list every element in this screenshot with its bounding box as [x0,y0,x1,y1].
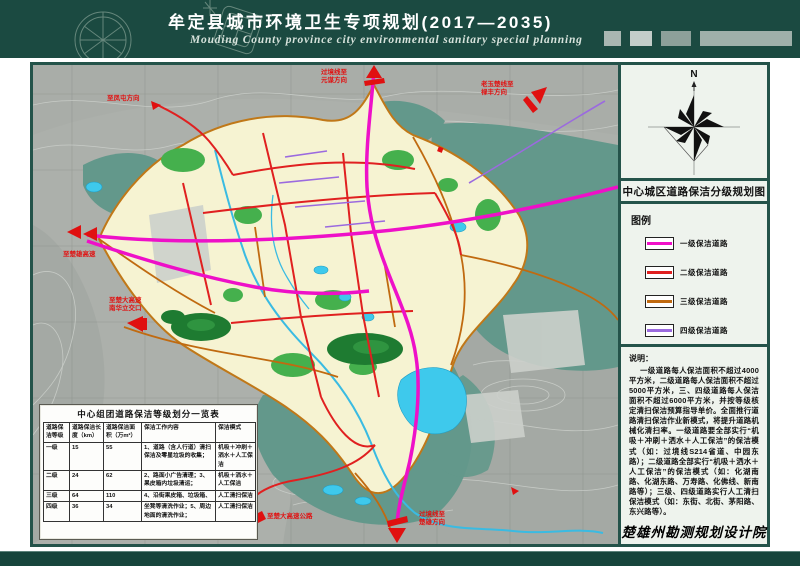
legend-item-grade3: 三级保洁道路 [645,295,757,308]
legend-label: 一级保洁道路 [680,238,728,249]
cell: 四级 [44,502,70,522]
cell: 人工清扫保洁 [216,502,256,522]
cell: 一级 [44,442,70,470]
grade4-road-swatch-icon [645,324,674,337]
legend-item-grade2: 二级保洁道路 [645,266,757,279]
decor-block [630,31,652,46]
legend-label: 二级保洁道路 [680,267,728,278]
legend: 图例 一级保洁道路 二级保洁道路 三级保洁道路 四级保洁道路 [621,204,767,347]
legend-label: 三级保洁道路 [680,296,728,307]
table-title: 中心组团道路保洁等级划分一览表 [43,408,254,420]
table-row: 一级 15 55 1、道路（含人行道）清扫保洁及零星垃圾的收集； 机吸＋冲刷＋洒… [44,442,256,470]
cell: 2、路面小广告清理；3、果皮箱内垃圾清运； [142,470,216,490]
header-bar: 牟定县城市环境卫生专项规划(2017—2035) Mouding County … [0,0,800,58]
col-header: 保洁工作内容 [142,423,216,443]
notes-body: 一级道路每人保洁面积不超过4000平方米，二级道路每人保洁面积不超过5000平方… [629,366,759,517]
col-header: 道路保洁面积（万m²） [104,423,142,443]
route-label: 过境线至 楚雄方向 [419,511,445,527]
header-decor-blocks [604,31,792,46]
route-label: 至楚大高速公路 [267,513,313,521]
cell: 4、沿街果皮箱、垃圾箱、 [142,490,216,501]
map-sheet-title: 中心城区道路保洁分级规划图 [621,181,767,204]
route-label: 过境线至 元谋方向 [321,69,347,85]
table-header-row: 道路保洁等级 道路保洁长度（km） 道路保洁面积（万m²） 保洁工作内容 保洁模… [44,423,256,443]
grade1-road-swatch-icon [645,237,674,250]
compass-rose-icon [621,65,767,178]
legend-item-grade4: 四级保洁道路 [645,324,757,337]
route-label: 至楚雄高速 [63,251,96,259]
compass-box: N [621,65,767,181]
cell: 1、道路（含人行道）清扫保洁及零星垃圾的收集； [142,442,216,470]
cell: 机吸＋冲刷＋洒水＋人工保洁 [216,442,256,470]
grade2-road-swatch-icon [645,266,674,279]
road-grade-table-card: 中心组团道路保洁等级划分一览表 道路保洁等级 道路保洁长度（km） 道路保洁面积… [39,404,258,540]
institute-name: 楚雄州勘测规划设计院 [621,518,767,544]
legend-label: 四级保洁道路 [680,325,728,336]
cell: 24 [70,470,104,490]
col-header: 道路保洁等级 [44,423,70,443]
cell: 三级 [44,490,70,501]
notes-section: 说明： 一级道路每人保洁面积不超过4000平方米，二级道路每人保洁面积不超过50… [621,347,767,518]
table-row: 三级 64 110 4、沿街果皮箱、垃圾箱、 人工清扫保洁 [44,490,256,501]
table-row: 二级 24 62 2、路面小广告清理；3、果皮箱内垃圾清运； 机吸＋洒水＋人工保… [44,470,256,490]
cell: 55 [104,442,142,470]
legend-item-grade1: 一级保洁道路 [645,237,757,250]
notes-title: 说明： [629,353,759,364]
cell: 64 [70,490,104,501]
page-subtitle: Mouding County province city environment… [190,34,620,46]
cell: 110 [104,490,142,501]
table-row: 四级 36 34 坐凳等清洗作业；5、周边地面的清洗作业； 人工清扫保洁 [44,502,256,522]
grade3-road-swatch-icon [645,295,674,308]
cell: 62 [104,470,142,490]
route-label: 至凤屯方向 [107,95,140,103]
decor-block [700,31,792,46]
page-title: 牟定县城市环境卫生专项规划(2017—2035) [168,8,608,33]
col-header: 道路保洁长度（km） [70,423,104,443]
cell: 34 [104,502,142,522]
decor-block [604,31,621,46]
decor-block [661,31,691,46]
cell: 坐凳等清洗作业；5、周边地面的清洗作业； [142,502,216,522]
cell: 人工清扫保洁 [216,490,256,501]
route-label: 老玉楚线至 禄丰方向 [481,81,514,97]
map-sheet-frame: 至凤屯方向 过境线至 元谋方向 老玉楚线至 禄丰方向 至楚雄高速 至楚大高速 南… [30,62,770,547]
bottom-band [0,551,800,566]
compass-north-label: N [621,69,767,80]
road-grade-table: 道路保洁等级 道路保洁长度（km） 道路保洁面积（万m²） 保洁工作内容 保洁模… [43,422,256,522]
side-panel: N [618,65,767,544]
cell: 机吸＋洒水＋人工保洁 [216,470,256,490]
planning-map: 至凤屯方向 过境线至 元谋方向 老玉楚线至 禄丰方向 至楚雄高速 至楚大高速 南… [33,65,618,544]
legend-title: 图例 [631,212,757,227]
route-label: 至楚大高速 南华立交口 [109,297,142,313]
col-header: 保洁模式 [216,423,256,443]
cell: 15 [70,442,104,470]
cell: 36 [70,502,104,522]
cell: 二级 [44,470,70,490]
